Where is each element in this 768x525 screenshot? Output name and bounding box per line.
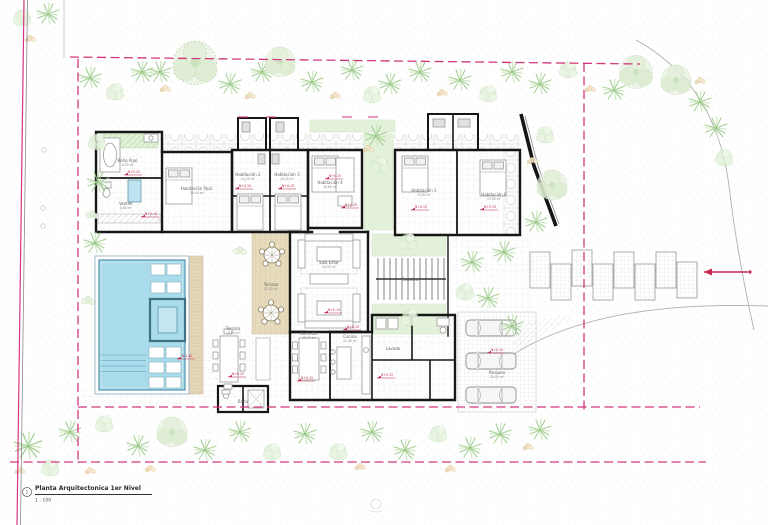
svg-text:N+0.15: N+0.15: [301, 376, 313, 380]
pool: [95, 256, 189, 394]
svg-text:N+0.15: N+0.15: [345, 203, 357, 207]
room-label: Parqueo32.00 m²: [489, 370, 506, 379]
pool-spa: [150, 299, 185, 341]
svg-text:N+0.15: N+0.15: [128, 170, 140, 174]
architectural-site-plan: Baño Ppal.6.20 m²Vestier4.80 m²Habitació…: [0, 0, 768, 525]
drawing-title: Planta Arquitectonica 1er Nivel: [35, 485, 141, 492]
room-label: Cocina11.40 m²: [343, 334, 358, 343]
svg-text:N-1.40: N-1.40: [182, 354, 193, 358]
svg-text:N+0.15: N+0.15: [282, 184, 294, 188]
svg-text:N+0.15: N+0.15: [381, 373, 393, 377]
room-label: Escalera: [402, 277, 419, 282]
svg-text:N+0.15: N+0.15: [232, 372, 244, 376]
sheet-number: 1: [26, 490, 29, 495]
svg-text:N+0.10: N+0.10: [491, 348, 503, 352]
svg-text:N+0.15: N+0.15: [415, 205, 427, 209]
svg-text:N+0.15: N+0.15: [145, 212, 157, 216]
room-label: Terraza18.60 m²: [225, 326, 241, 335]
svg-text:N+0.15: N+0.15: [328, 308, 340, 312]
room-label: Vestier4.80 m²: [119, 201, 133, 210]
svg-text:N+0.15: N+0.15: [347, 325, 359, 329]
room-label: Terraza12.30 m²: [263, 282, 279, 291]
svg-text:N+0.15: N+0.15: [239, 184, 251, 188]
room-label: Comedor15.70 m²: [300, 331, 319, 340]
room-label: Lavado: [386, 346, 401, 351]
svg-text:N+0.15: N+0.15: [329, 174, 341, 178]
svg-text:N+0.15: N+0.15: [484, 205, 496, 209]
drawing-scale: 1 : 100: [35, 498, 51, 504]
room-label: Baño: [238, 399, 249, 404]
